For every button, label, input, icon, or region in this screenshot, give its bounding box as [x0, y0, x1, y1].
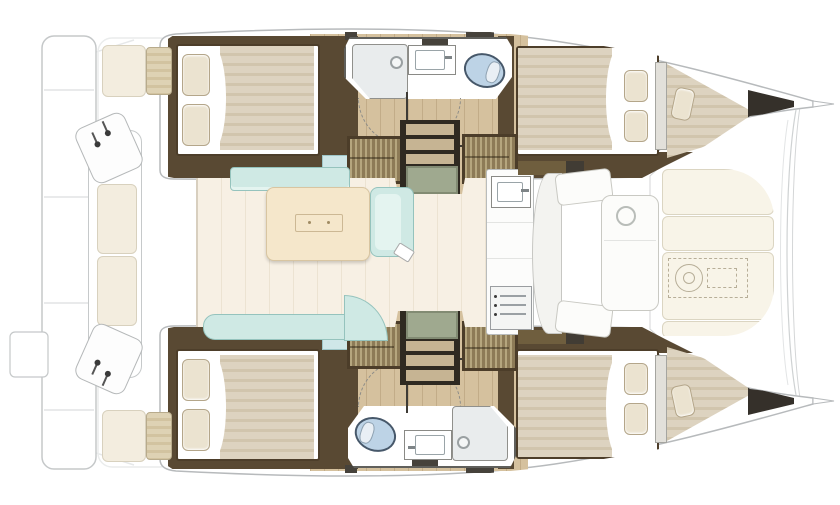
stair-treads — [406, 124, 454, 164]
aft-bench-cushion — [97, 256, 137, 326]
sun-pad — [662, 321, 774, 336]
tap-icon — [521, 189, 529, 192]
toilet — [354, 415, 400, 457]
foredeck-pads — [660, 169, 774, 336]
counter-seam — [487, 258, 533, 259]
stair-mat — [406, 166, 458, 194]
windlass-drum-inner — [683, 272, 695, 284]
bench-seat — [203, 314, 351, 340]
aft-double-berth — [176, 349, 320, 461]
wardrobe-rail — [465, 347, 509, 349]
starboard-bow-tip — [813, 398, 834, 404]
wardrobe-rail — [350, 346, 394, 348]
swim-step — [10, 332, 48, 377]
stove-grate — [500, 295, 526, 297]
forward-double-berth — [516, 46, 659, 156]
sofa-cushion — [375, 194, 401, 250]
sun-pad — [662, 216, 774, 251]
washbasin-unit — [404, 430, 452, 460]
aft-bench-cushion — [97, 184, 137, 254]
catamaran-floorplan — [0, 0, 840, 505]
cockpit-seat-cushion — [102, 410, 146, 462]
table-ring-icon — [616, 206, 636, 226]
basin — [415, 50, 445, 70]
table-dot — [327, 221, 330, 224]
pillow — [182, 409, 210, 451]
stove — [490, 286, 532, 330]
wardrobe-left — [347, 136, 403, 184]
duvet — [220, 46, 314, 150]
counter-seam — [487, 222, 533, 223]
tap-icon — [408, 446, 415, 449]
companionway-stairs — [400, 120, 460, 194]
shower-drain-icon — [390, 56, 403, 69]
galley-counter — [486, 169, 534, 335]
pillow — [624, 110, 648, 142]
port-bow-tip — [813, 101, 834, 107]
toilet-bowl-icon — [350, 412, 400, 457]
washbasin-unit — [408, 45, 456, 75]
pillow — [624, 70, 648, 102]
basin — [497, 182, 523, 202]
tap-icon — [445, 56, 452, 59]
duvet — [518, 48, 612, 150]
cockpit-seat-cushion — [102, 45, 146, 97]
throttle-knob — [94, 140, 102, 148]
stove-knob — [494, 295, 497, 298]
shower-drain-icon — [457, 436, 470, 449]
bathroom — [344, 37, 516, 103]
sun-pad — [662, 169, 774, 215]
toilet — [460, 48, 506, 90]
shower — [352, 44, 408, 99]
cockpit-seat-cushion-striped — [146, 412, 172, 460]
wardrobe-rail — [350, 157, 394, 159]
faucet-icon — [412, 459, 438, 466]
stove-grate — [500, 313, 526, 315]
forepeak-bulkhead — [655, 62, 667, 150]
forepeak-bulkhead — [655, 355, 667, 443]
stair-mat — [406, 311, 458, 339]
stair-treads — [406, 341, 454, 381]
forward-cockpit-seat — [601, 195, 659, 311]
windlass-motor — [707, 268, 737, 288]
cushion-seam — [604, 240, 656, 241]
stove-grate — [500, 304, 526, 306]
pillow — [670, 86, 696, 121]
stove-knob — [494, 313, 497, 316]
bathroom — [344, 402, 516, 468]
windlass — [668, 258, 748, 298]
pillow — [624, 403, 648, 435]
dining-table — [266, 187, 370, 261]
pillow — [670, 383, 696, 418]
pillow — [182, 359, 210, 401]
aft-double-berth — [176, 44, 320, 156]
duvet — [518, 355, 612, 457]
cockpit-seat-cushion-striped — [146, 47, 172, 95]
shower — [452, 406, 508, 461]
duvet — [220, 355, 314, 459]
basin — [415, 435, 445, 455]
wardrobe-rail — [465, 156, 509, 158]
table-inlay — [295, 214, 343, 232]
companionway-stairs — [400, 311, 460, 385]
table-dot — [308, 221, 311, 224]
throttle-knob — [104, 129, 112, 137]
pillow — [624, 363, 648, 395]
pillow — [182, 54, 210, 96]
toilet-bowl-icon — [459, 48, 509, 93]
saloon-door-line — [196, 170, 198, 336]
galley-sink — [491, 176, 531, 208]
stove-knob — [494, 304, 497, 307]
pillow — [182, 104, 210, 146]
forward-double-berth — [516, 349, 659, 459]
